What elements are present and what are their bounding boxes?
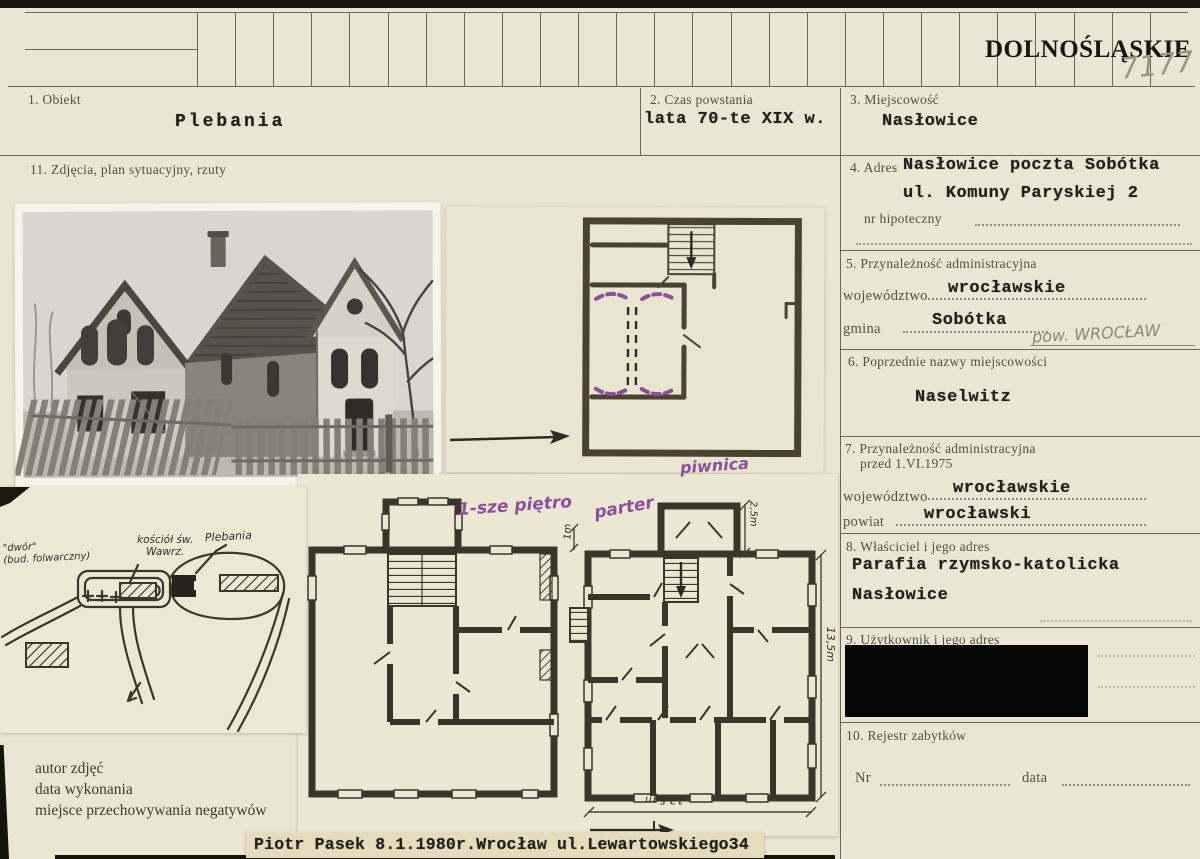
field3-value: Nasłowice: [882, 112, 978, 131]
dotted-line: [928, 498, 1146, 500]
grid-cell: [883, 13, 921, 86]
grid-cell: [197, 13, 235, 86]
field5-gmina-label: gmina: [843, 321, 881, 338]
field5-label: 5. Przynależność administracyjna: [846, 256, 1037, 272]
dotted-line: [975, 224, 1180, 226]
photo-credit-line3: miejsce przechowywania negatywów: [35, 800, 267, 821]
redaction-box: [845, 645, 1088, 717]
dimension-label-2-5m: 2,5m: [747, 501, 759, 527]
field1-label: 1. Obiekt: [28, 92, 81, 108]
dotted-line: [880, 784, 1010, 786]
field4-hypothec-label: nr hipoteczny: [864, 211, 942, 227]
scan-left-edge: [0, 745, 9, 859]
dotted-line: [896, 524, 1146, 526]
site-label-church-line1: kościół św.: [137, 534, 193, 546]
ground-floor-plan-drawing: [558, 480, 842, 844]
grid-cell: [540, 13, 578, 86]
grid-cell: [731, 13, 769, 86]
first-floor-plan-drawing: [302, 492, 564, 820]
grid-cell: [616, 13, 654, 86]
grid-cell: [426, 13, 464, 86]
grid-cell: [464, 13, 502, 86]
field7-powiat-value: wrocławski: [924, 505, 1031, 524]
divider-line: [840, 436, 1200, 437]
field7-powiat-label: powiat: [843, 514, 884, 531]
dimension-label-13-5m-bottom: 13,5 m: [645, 793, 684, 806]
field8-value-line2: Nasłowice: [852, 586, 948, 605]
site-label-farm-building: "dwór" (bud. folwarczny): [2, 539, 90, 567]
field11-label: 11. Zdjęcia, plan sytuacyjny, rzuty: [30, 162, 226, 178]
field2-label: 2. Czas powstania: [650, 92, 753, 108]
grid-cell: [769, 13, 807, 86]
field5-gmina-value: Sobótka: [932, 311, 1007, 330]
divider-line: [8, 86, 1195, 87]
author-note-tape: Piotr Pasek 8.1.1980r.Wrocław ul.Lewarto…: [246, 832, 764, 858]
field1-value: Plebania: [175, 112, 285, 132]
field6-label: 6. Poprzednie nazwy miejscowości: [848, 354, 1047, 370]
dotted-line: [856, 243, 1192, 245]
field7-label-line2: przed 1.VI.1975: [860, 456, 953, 472]
dotted-line: [1040, 620, 1192, 622]
grid-cell: [692, 13, 730, 86]
grid-cell: [845, 13, 883, 86]
field8-label: 8. Właściciel i jego adres: [846, 539, 990, 555]
field4-value-line1: Nasłowice poczta Sobótka: [903, 156, 1160, 175]
pencil-underline: [1030, 345, 1195, 346]
grid-cell: [502, 13, 540, 86]
field5-pencil-note: pow. WROCŁAW: [1032, 321, 1161, 347]
site-label-church-line2: Wawrz.: [137, 546, 193, 558]
field8-value-line1: Parafia rzymsko-katolicka: [852, 556, 1120, 575]
dotted-line: [1098, 686, 1195, 688]
field5-wojewodztwo-value: wrocławskie: [948, 279, 1066, 298]
scan-top-edge: [0, 0, 1200, 8]
pointer-arrow-icon: [448, 428, 573, 448]
divider-line: [840, 349, 1200, 350]
divider-line: [640, 88, 641, 155]
field7-wojewodztwo-label: województwo: [843, 489, 928, 506]
heritage-record-card-scan: DOLNOŚLĄSKIE 7177 1. Obiekt Plebania 2. …: [0, 0, 1200, 859]
divider-line: [840, 533, 1200, 534]
author-note-text: Piotr Pasek 8.1.1980r.Wrocław ul.Lewarto…: [254, 835, 749, 854]
photo-credit-line2: data wykonania: [35, 779, 267, 800]
photo-credit-line1: autor zdjęć: [35, 758, 267, 779]
grid-cell: [273, 13, 311, 86]
building-photograph: [15, 202, 442, 490]
site-label-church: kościół św. Wawrz.: [137, 534, 193, 558]
dimension-label-13-5m-right: 13,5m: [823, 627, 836, 662]
grid-cell: [349, 13, 387, 86]
field10-label: 10. Rejestr zabytków: [846, 728, 966, 744]
field2-value: lata 70-te XIX w.: [644, 110, 826, 129]
field5-wojewodztwo-label: województwo: [843, 288, 928, 305]
dotted-line: [1062, 784, 1190, 786]
divider-line: [840, 627, 1200, 628]
photo-credit-block: autor zdjęć data wykonania miejsce przec…: [35, 758, 267, 821]
header-wide-cell: [25, 13, 197, 86]
divider-line: [840, 722, 1200, 723]
grid-cell: [388, 13, 426, 86]
grid-cell: [235, 13, 273, 86]
site-label-rectory: Plebania: [205, 530, 253, 545]
grid-cell: [578, 13, 616, 86]
grid-cell: [921, 13, 959, 86]
field7-wojewodztwo-value: wrocławskie: [953, 479, 1071, 498]
grid-cell: [654, 13, 692, 86]
divider-line: [840, 250, 1200, 251]
building-photo-drawing: [15, 202, 442, 490]
dotted-line: [1098, 655, 1195, 657]
field7-label-line1: 7. Przynależność administracyjna: [845, 441, 1036, 457]
grid-cell: [807, 13, 845, 86]
dotted-line: [903, 331, 1048, 333]
field3-label: 3. Miejscowość: [850, 92, 939, 108]
dotted-line: [928, 298, 1146, 300]
dimension-label-1m: 1m: [562, 524, 574, 540]
field4-label: 4. Adres: [850, 160, 897, 176]
field6-value: Naselwitz: [915, 388, 1011, 407]
grid-cell: [311, 13, 349, 86]
field10-data-label: data: [1022, 770, 1047, 787]
field10-nr-label: Nr: [855, 770, 871, 787]
site-plan-sheet: [0, 487, 306, 733]
field4-value-line2: ul. Komuny Paryskiej 2: [903, 184, 1138, 203]
site-plan-drawing: [0, 487, 306, 733]
